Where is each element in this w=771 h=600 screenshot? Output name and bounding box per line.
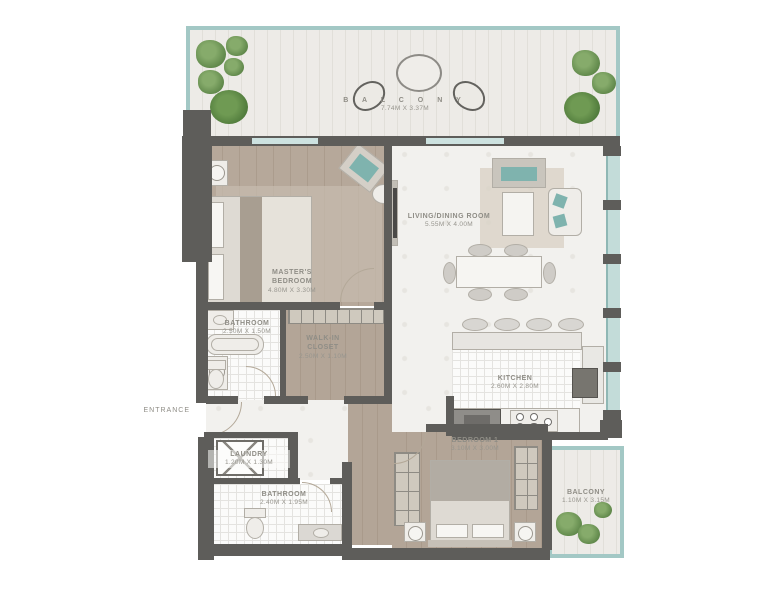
tv-icon [393, 188, 397, 238]
room-name: B A L C O N Y [310, 96, 500, 105]
bathtub-inner [211, 338, 259, 351]
room-name: LAUNDRY [208, 450, 290, 459]
hallway-floor [298, 432, 348, 480]
sofa [492, 158, 546, 188]
sliding-glass-door [426, 138, 504, 144]
lamp [408, 526, 423, 541]
room-label-balcony-top: B A L C O N Y 7.74M X 3.37M [310, 96, 500, 114]
hallway-floor [206, 400, 450, 436]
burner-icon [530, 413, 538, 421]
room-dims: 2.50M X 1.10M [290, 353, 356, 362]
pillow [472, 524, 504, 538]
sliding-glass-door [252, 138, 318, 144]
wall-segment [384, 146, 392, 306]
window-mullion [603, 308, 621, 318]
entrance-label: ENTRANCE [134, 406, 190, 415]
toilet [246, 517, 264, 539]
room-label-kitchen: KITCHEN 2.60M X 2.80M [460, 374, 570, 392]
entrance-text: ENTRANCE [134, 406, 190, 415]
sink-basin [313, 528, 329, 538]
room-name: BATHROOM [210, 319, 284, 328]
wall-segment [264, 396, 308, 404]
room-dims: 2.40M X 1.95M [238, 499, 330, 508]
room-label-master-bedroom: MASTER'S BEDROOM 4.80M X 3.30M [252, 268, 332, 296]
room-name: BEDROOM 1 [420, 436, 530, 445]
wardrobe [514, 446, 538, 510]
chair-cushion [349, 154, 379, 183]
glass-wall [606, 146, 620, 424]
wall-segment [204, 432, 296, 438]
plant [210, 90, 248, 124]
lamp [518, 526, 533, 541]
bathroom-vanity [298, 524, 342, 541]
wall-segment [182, 136, 212, 262]
window-mullion [603, 200, 621, 210]
wall-segment [344, 396, 392, 404]
wall-segment [342, 548, 550, 560]
room-dims: 7.74M X 3.37M [310, 105, 500, 114]
room-dims: 5.55M X 4.00M [406, 221, 492, 230]
room-name: BATHROOM [238, 490, 330, 499]
room-label-walk-in-closet: WALK-IN CLOSET 2.50M X 1.10M [290, 334, 356, 362]
room-name: KITCHEN [460, 374, 570, 383]
dining-chair [443, 262, 456, 284]
dining-chair [504, 244, 528, 257]
floor-plan: B A L C O N Y 7.74M X 3.37M MASTER'S BED… [0, 0, 771, 600]
plant [226, 36, 248, 56]
room-label-laundry: LAUNDRY 1.20M X 1.30M [208, 450, 290, 468]
bar-stool [462, 318, 488, 331]
room-name: WALK-IN CLOSET [290, 334, 356, 353]
balcony-table [396, 54, 442, 92]
toilet [208, 369, 224, 389]
dining-chair [468, 244, 492, 257]
closet-wardrobe [288, 308, 384, 324]
fridge [572, 368, 598, 398]
wall-segment [206, 396, 238, 404]
room-dims: 3.10M X 3.00M [420, 445, 530, 454]
bar-stool [558, 318, 584, 331]
room-name: BALCONY [550, 488, 622, 497]
bar-stool [526, 318, 552, 331]
pillow [436, 524, 468, 538]
wall-segment [600, 420, 622, 438]
corridor-floor [348, 404, 392, 545]
room-name: MASTER'S BEDROOM [252, 268, 332, 287]
window-mullion [603, 410, 621, 422]
room-label-bathroom-2: BATHROOM 2.40M X 1.95M [238, 490, 330, 508]
room-label-living-dining: LIVING/DINING ROOM 5.55M X 4.00M [406, 212, 492, 230]
burner-icon [516, 413, 524, 421]
window-mullion [603, 146, 621, 156]
room-label-bedroom-1: BEDROOM 1 3.10M X 3.00M [420, 436, 530, 454]
plant [224, 58, 244, 76]
throw-pillow [553, 214, 568, 229]
bed-blanket [431, 461, 509, 501]
room-name: LIVING/DINING ROOM [406, 212, 492, 221]
wall-segment [384, 306, 392, 400]
throw-pillow [552, 193, 567, 208]
room-dims: 2.60M X 2.80M [460, 383, 570, 392]
breakfast-bar [452, 332, 582, 350]
plant [578, 524, 600, 544]
plant [564, 92, 600, 124]
wall-segment [196, 262, 208, 403]
room-label-bathroom-1: BATHROOM 2.50M X 1.50M [210, 319, 284, 337]
plant [198, 70, 224, 94]
wall-segment [446, 396, 454, 436]
plant [592, 72, 616, 94]
room-dims: 1.20M X 1.30M [208, 459, 290, 468]
wall-segment [342, 462, 352, 554]
room-label-balcony-bottom: BALCONY 1.10M X 3.15M [550, 488, 622, 506]
room-dims: 2.50M X 1.50M [210, 328, 284, 337]
bar-stool [494, 318, 520, 331]
window-mullion [603, 362, 621, 372]
window-mullion [603, 254, 621, 264]
room-dims: 4.80M X 3.30M [252, 287, 332, 296]
wall-segment [204, 478, 300, 484]
sofa-cushion [501, 167, 537, 181]
plant [196, 40, 226, 68]
coffee-table [502, 192, 534, 236]
armchair [548, 188, 582, 236]
room-dims: 1.10M X 3.15M [550, 497, 622, 506]
wall-segment [206, 302, 340, 310]
dining-chair [468, 288, 492, 301]
plant [572, 50, 600, 76]
wall-segment [426, 424, 548, 432]
wall-segment [210, 544, 352, 556]
headboard [428, 540, 512, 547]
dining-table [456, 256, 542, 288]
dining-chair [504, 288, 528, 301]
dining-chair [543, 262, 556, 284]
